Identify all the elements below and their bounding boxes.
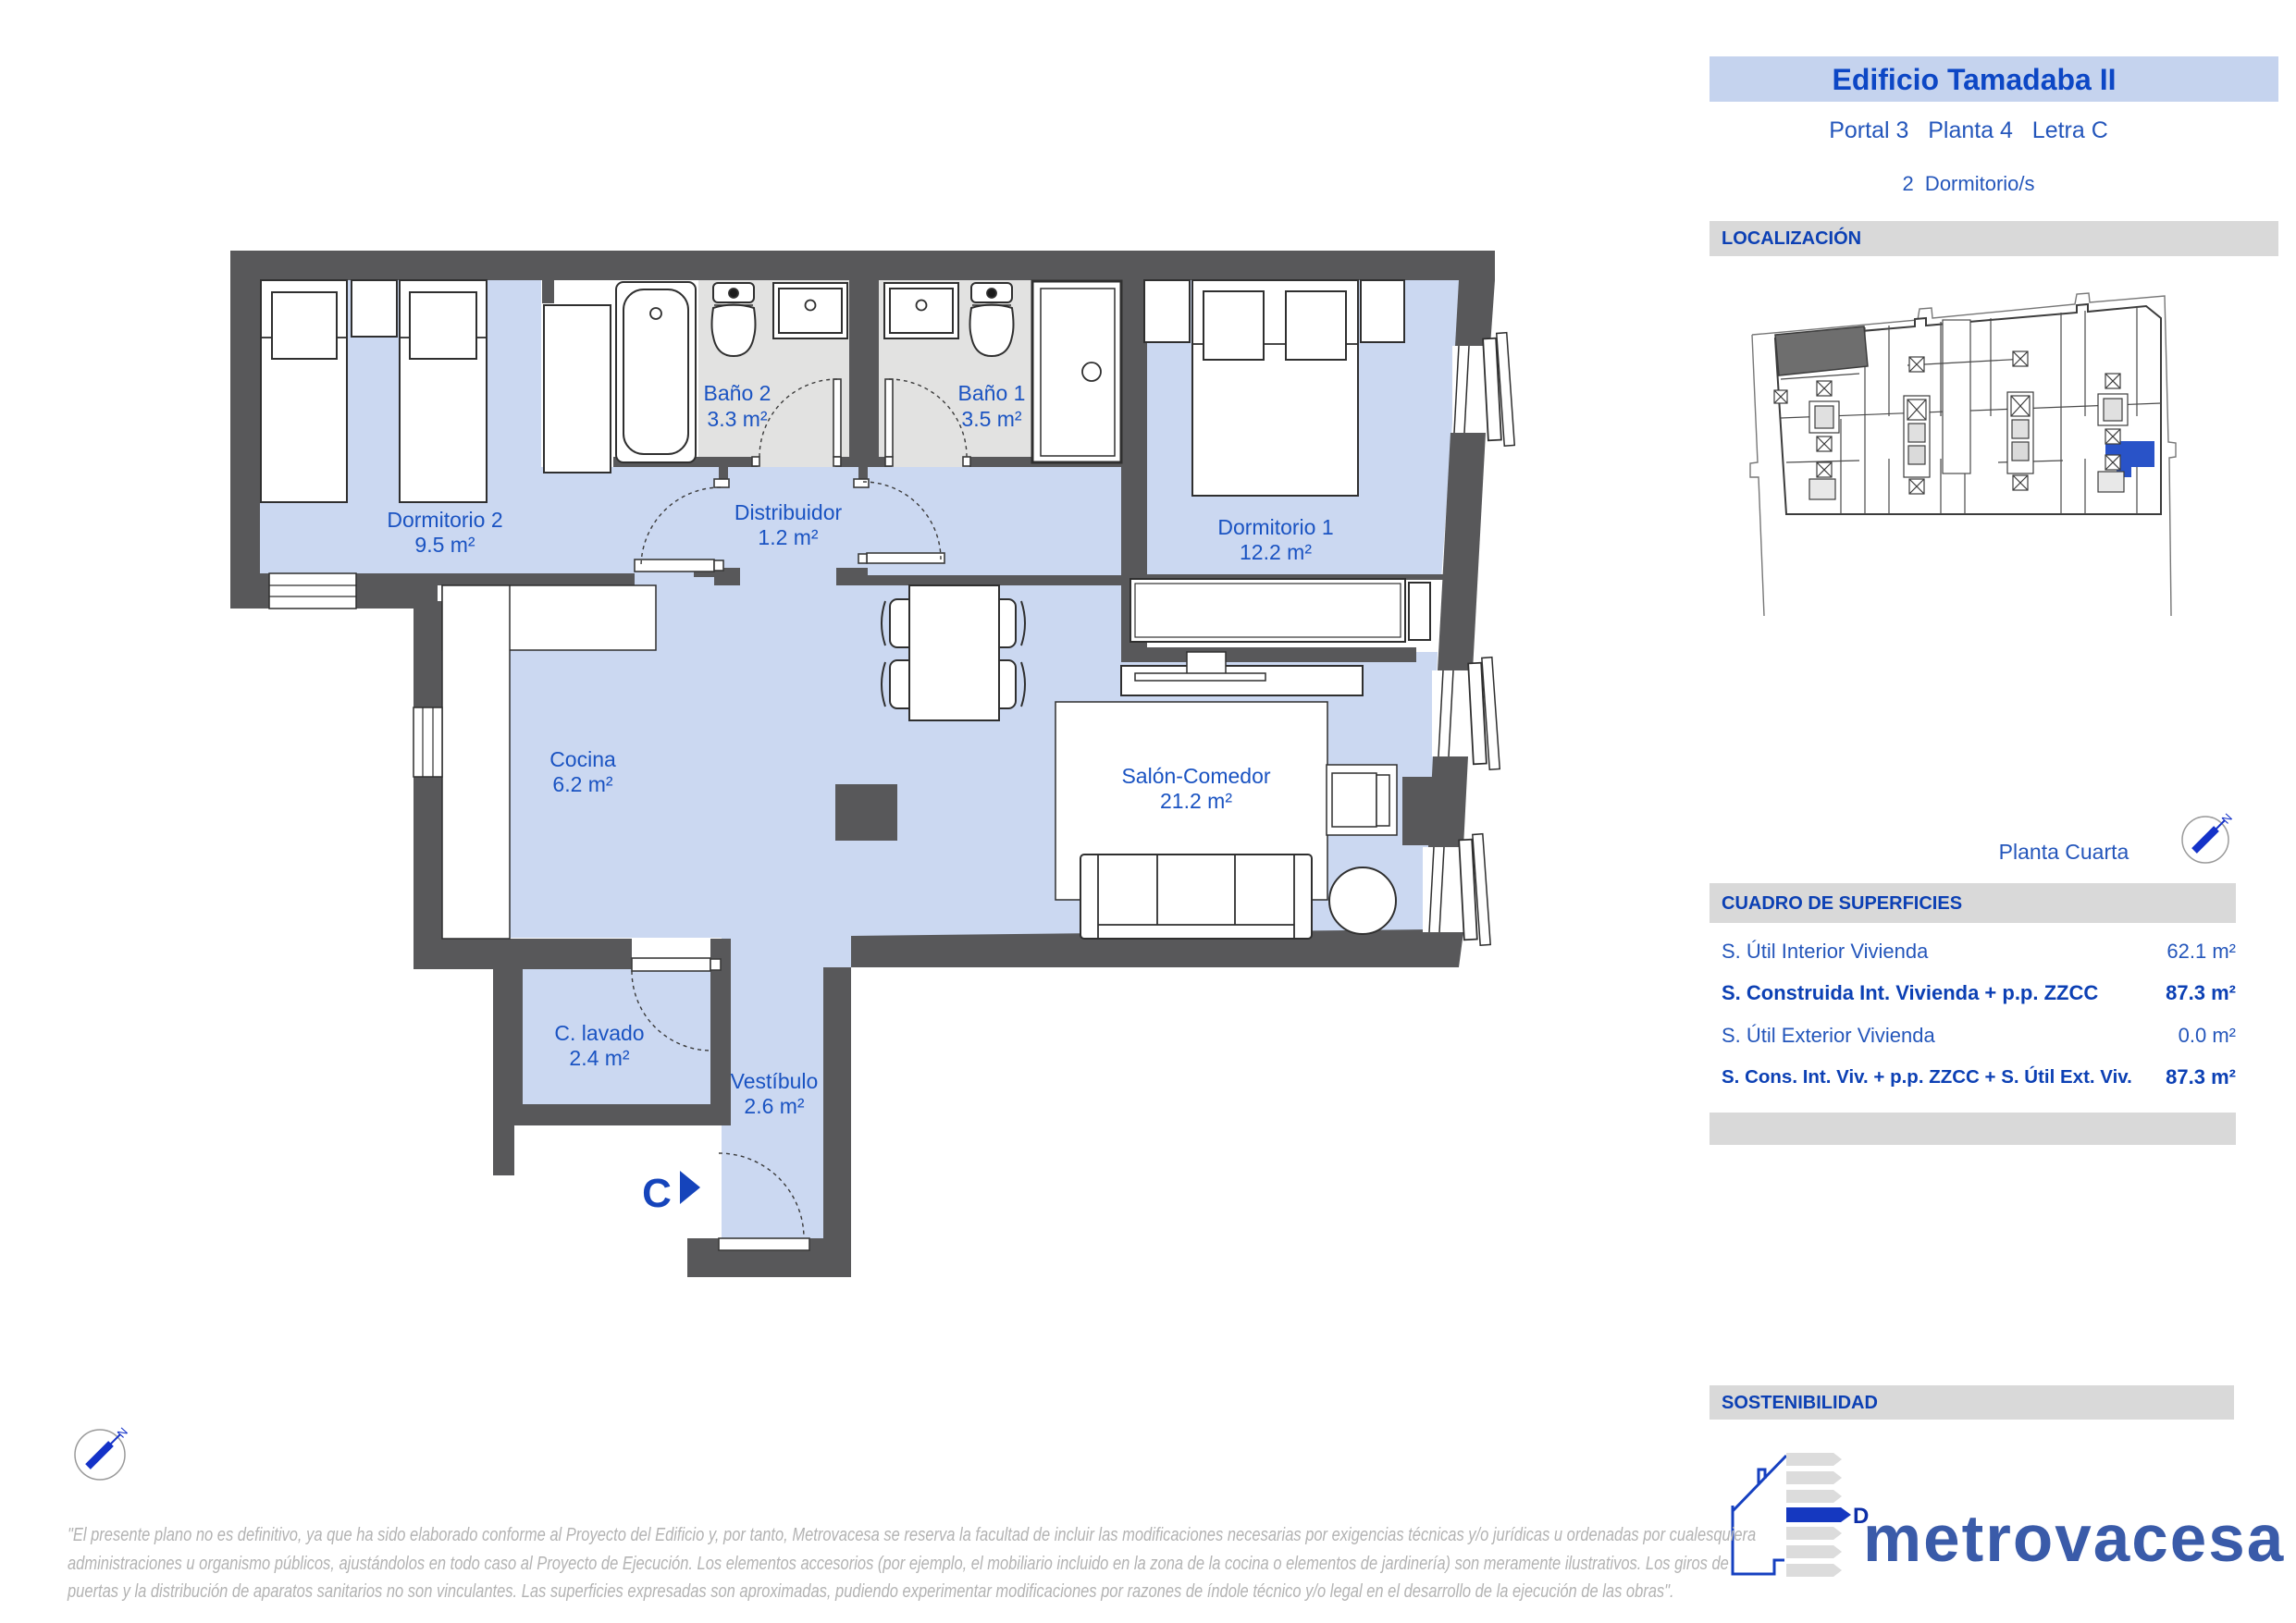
svg-text:C: C	[642, 1171, 672, 1216]
svg-text:Baño 1: Baño 1	[958, 381, 1026, 405]
svg-text:9.5 m²: 9.5 m²	[414, 533, 475, 557]
svg-text:Vestíbulo: Vestíbulo	[731, 1069, 819, 1093]
svg-text:2.4 m²: 2.4 m²	[569, 1046, 630, 1070]
svg-text:C. lavado: C. lavado	[554, 1021, 644, 1045]
svg-text:Distribuidor: Distribuidor	[734, 500, 843, 524]
svg-text:6.2 m²: 6.2 m²	[552, 772, 613, 796]
svg-text:2.6 m²: 2.6 m²	[744, 1094, 805, 1118]
svg-text:Dormitorio 1: Dormitorio 1	[1217, 515, 1333, 539]
svg-text:21.2 m²: 21.2 m²	[1160, 789, 1232, 813]
svg-text:metrovacesa: metrovacesa	[1863, 1503, 2285, 1576]
svg-text:3.3 m²: 3.3 m²	[707, 407, 768, 431]
svg-text:Baño 2: Baño 2	[704, 381, 772, 405]
svg-text:Salón-Comedor: Salón-Comedor	[1121, 764, 1270, 788]
svg-text:12.2 m²: 12.2 m²	[1240, 540, 1312, 564]
svg-text:Dormitorio 2: Dormitorio 2	[387, 508, 502, 532]
svg-text:Cocina: Cocina	[549, 747, 616, 771]
svg-text:1.2 m²: 1.2 m²	[758, 525, 819, 549]
svg-text:3.5 m²: 3.5 m²	[961, 407, 1022, 431]
